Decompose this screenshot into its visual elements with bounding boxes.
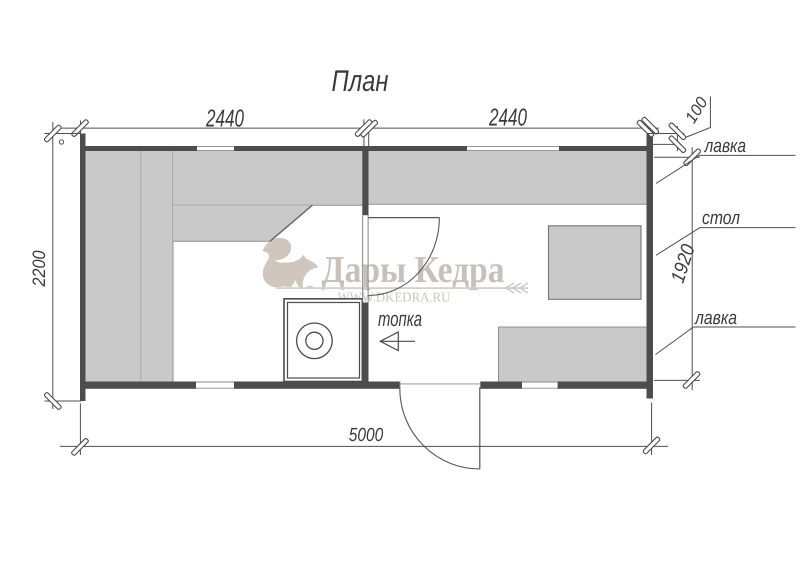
svg-text:Дары Кедра: Дары Кедра — [322, 249, 505, 291]
svg-text:2440: 2440 — [205, 106, 244, 133]
svg-text:лавка: лавка — [694, 308, 737, 329]
svg-text:2200: 2200 — [29, 251, 49, 288]
svg-text:стол: стол — [702, 208, 740, 229]
svg-text:5000: 5000 — [349, 425, 384, 446]
svg-text:лавка: лавка — [704, 136, 746, 157]
svg-text:топка: топка — [378, 308, 422, 331]
svg-text:2440: 2440 — [488, 105, 527, 132]
svg-text:План: План — [332, 65, 389, 98]
